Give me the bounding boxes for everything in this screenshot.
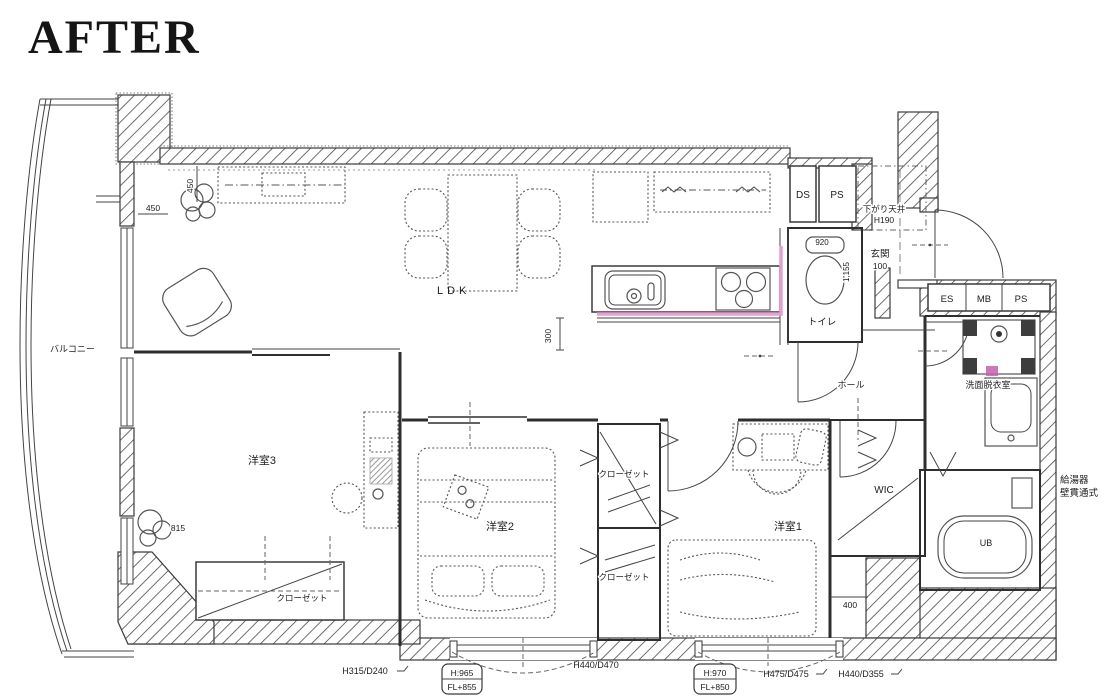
window-label-1: H315/D240 <box>342 666 388 676</box>
ps-top-label: PS <box>830 190 844 201</box>
toilet: トイレ 920 1,155 <box>806 237 851 328</box>
toilet-depth-dim: 1,155 <box>842 261 851 282</box>
dining-chair <box>405 236 447 278</box>
closet-lower-label: クローゼット <box>598 572 649 582</box>
closet-column: クローゼット クローゼット <box>580 432 678 582</box>
closet-upper-label: クローゼット <box>598 469 649 479</box>
wic-door-arc <box>840 421 896 477</box>
room1-label: 洋室1 <box>774 519 802 533</box>
balcony-label: バルコニー <box>50 344 95 354</box>
chair-room1 <box>748 470 806 492</box>
washroom: 洗面脱衣室 <box>918 320 1037 446</box>
pillow <box>432 566 484 596</box>
dining-chair <box>405 189 447 231</box>
dim-450-h: 450 <box>146 203 160 213</box>
hall-label: ホール <box>837 380 864 390</box>
window-label-6: H440/D355 <box>838 669 884 679</box>
lowered-ceiling-label: 下がり天井 <box>863 204 906 214</box>
plant-room3 <box>138 510 171 546</box>
lowered-ceiling-height: H190 <box>874 215 895 225</box>
room1: 洋室1 400 <box>668 398 868 636</box>
upper-cabinet <box>654 172 770 212</box>
ldk-label: LDK <box>437 285 470 297</box>
dining-table <box>448 175 517 291</box>
window-tag-1-height: H:965 <box>451 668 474 678</box>
bed-throw <box>443 475 488 519</box>
floor-plan-drawing: バルコニー <box>0 0 1102 699</box>
bed-room1 <box>668 540 816 636</box>
entrance-step-dim: 100 <box>873 261 887 271</box>
entrance-door-arc <box>935 210 1003 278</box>
window-tag-1: H:965 FL+855 <box>442 664 482 694</box>
closet-room3-label: クローゼット <box>276 593 327 603</box>
dining-chair <box>518 189 560 231</box>
doors <box>668 210 1003 491</box>
dining-chair <box>518 236 560 278</box>
dim-815: 815 <box>171 523 185 533</box>
room2: 洋室2 <box>418 402 555 618</box>
floor-plan-page: AFTER バルコニー <box>0 0 1102 699</box>
window-label-5: H475/D475 <box>763 669 809 679</box>
desk-room1 <box>733 424 828 470</box>
refrigerator-space <box>593 172 648 222</box>
dim-400: 400 <box>843 600 857 610</box>
bath-folding-door <box>930 452 956 476</box>
room1-door-arc <box>668 421 738 491</box>
toilet-door-arc <box>798 342 858 402</box>
ldk-area: LDK <box>158 167 595 340</box>
dim-450-v: 450 <box>185 179 195 193</box>
toilet-label: トイレ <box>808 317 837 328</box>
armchair <box>158 264 236 341</box>
entrance-label: 玄関 <box>870 248 889 260</box>
wic-label: WIC <box>874 485 893 496</box>
room2-label: 洋室2 <box>486 519 514 533</box>
wic: WIC <box>838 430 918 540</box>
kitchen <box>592 172 781 322</box>
washroom-label: 洗面脱衣室 <box>965 379 1010 390</box>
window-tag-2-height: H:970 <box>704 668 727 678</box>
washroom-highlight <box>986 366 998 376</box>
water-heater-note: 給湯器 壁貫通式 <box>1060 474 1099 499</box>
mb-label: MB <box>977 294 991 305</box>
toilet-width-dim: 920 <box>815 238 829 247</box>
left-windows <box>121 228 133 584</box>
unit-bath: UB <box>938 478 1032 578</box>
window-tag-2: H:970 FL+850 <box>694 664 736 694</box>
es-label: ES <box>941 294 954 305</box>
ps-right-label: PS <box>1015 294 1028 305</box>
room3-label: 洋室3 <box>248 453 276 467</box>
bath-counter <box>1012 478 1032 508</box>
balcony: バルコニー <box>20 99 134 657</box>
ds-label: DS <box>796 190 810 201</box>
dim-300: 300 <box>543 329 553 343</box>
window-annotations: H315/D240 H:965 FL+855 H440/D470 H:970 F… <box>342 660 902 694</box>
window-tag-2-floor: FL+850 <box>700 682 729 692</box>
pillow <box>492 566 544 596</box>
chair-room3 <box>332 483 362 513</box>
water-heater-line2: 壁貫通式 <box>1060 487 1099 499</box>
window-label-3: H440/D470 <box>573 660 619 670</box>
water-heater-line1: 給湯器 <box>1060 474 1089 486</box>
window-tag-1-floor: FL+855 <box>447 682 476 692</box>
bed-room2 <box>418 448 555 618</box>
unit-bath-label: UB <box>980 538 993 548</box>
toilet-bowl <box>806 256 844 304</box>
